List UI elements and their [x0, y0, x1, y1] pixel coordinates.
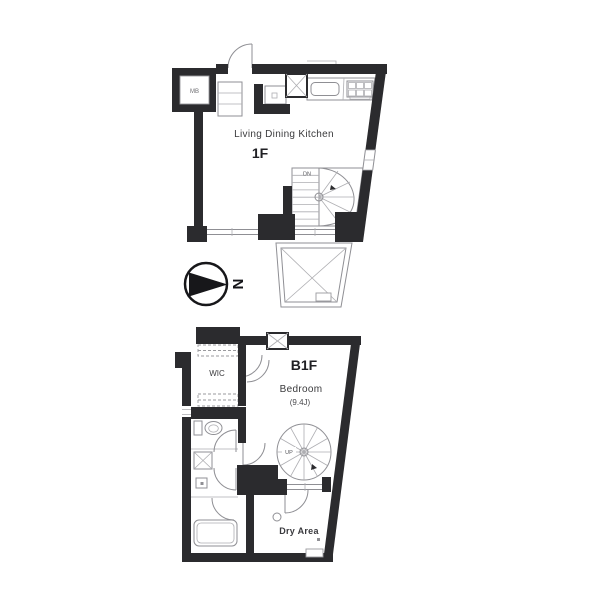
entrance-door-icon [228, 44, 252, 68]
kitchen-sink-icon [311, 83, 339, 96]
bathtub-icon [194, 520, 237, 546]
compass-north-label: N [229, 279, 246, 290]
stair-up-label: UP [285, 450, 293, 456]
bedroom-size-label: (9.4J) [290, 398, 311, 407]
walls-b1f [175, 327, 361, 562]
window-1f-south-left [207, 228, 258, 236]
washer-pan-icon [194, 452, 212, 469]
shaft-box-b1f [267, 333, 288, 349]
window-1f-east [363, 150, 376, 170]
spiral-stair-b1f: UP [277, 424, 331, 480]
shoe-cabinet-icon [218, 82, 242, 116]
dry-area-dot [317, 538, 320, 541]
window-b1f-west [182, 406, 191, 417]
vanity-box-icon [196, 478, 207, 488]
floor-b1f-label: B1F [291, 357, 318, 373]
void-hatch-box [316, 293, 331, 301]
compass: N [185, 263, 246, 305]
floorplan-1f: DN MB [172, 44, 387, 242]
floor-1f-label: 1F [252, 145, 269, 161]
dry-area-vent [306, 549, 323, 557]
shaft-box-1f [286, 74, 307, 97]
meter-box-label: MB [190, 89, 199, 95]
hall-door-icon [243, 443, 265, 465]
dry-area-label: Dry Area [279, 526, 319, 536]
floorplan-b1f: UP [175, 327, 361, 562]
entry-step-line [307, 61, 336, 64]
dry-area-drain-icon [273, 513, 281, 521]
floor-plan-page: DN MB [0, 0, 608, 609]
window-dry-area [285, 483, 326, 491]
bedroom-label: Bedroom [280, 384, 323, 395]
kitchen-counter [307, 78, 375, 100]
toilet-icon [194, 421, 222, 435]
appliance-box-icon [265, 86, 286, 104]
void-area [276, 243, 352, 307]
stair-dn-label: DN [303, 172, 311, 178]
ldk-room-label: Living Dining Kitchen [234, 129, 334, 140]
bath-door-icon [212, 468, 236, 520]
dry-area-door-icon [285, 490, 308, 513]
window-1f-south-right [295, 228, 335, 236]
stair-arrow-icon [311, 464, 317, 470]
wic-label: WIC [209, 369, 225, 378]
kitchen-stove-icon [347, 81, 373, 99]
